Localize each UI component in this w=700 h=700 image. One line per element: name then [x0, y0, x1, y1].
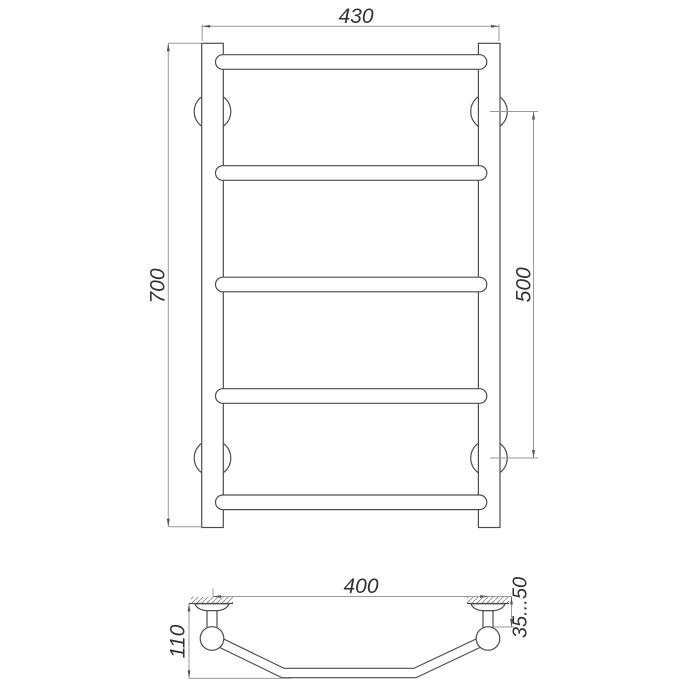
front-view: 430 700 500: [147, 5, 539, 528]
arrowhead: [188, 670, 191, 678]
arrowhead: [167, 519, 170, 527]
wall-hatch: [467, 597, 509, 604]
rung: [216, 389, 487, 404]
technical-drawing: 430 700 500: [0, 0, 700, 700]
arrowhead: [532, 112, 535, 120]
rung: [216, 277, 487, 292]
dim-wall-clearance: 35...50: [510, 577, 532, 638]
rung: [216, 55, 487, 70]
arrowhead: [532, 450, 535, 458]
dim-overall-height: 700: [147, 43, 202, 526]
wall-hatch: [191, 597, 233, 604]
dim-depth-label: 110: [167, 624, 190, 658]
arrowhead: [188, 604, 191, 612]
dim-overall-width-label: 430: [338, 5, 373, 28]
dim-overall-width: 430: [202, 5, 499, 41]
rung: [216, 495, 487, 510]
bracket-ball: [200, 627, 224, 651]
dim-mount-spacing-label: 500: [513, 267, 536, 302]
side-view: 400 110 35...50: [167, 575, 532, 679]
dim-overall-height-label: 700: [147, 268, 170, 303]
drawing-canvas: 430 700 500: [0, 0, 700, 700]
dim-wall-clearance-label: 35...50: [510, 577, 532, 638]
arrowhead: [167, 43, 170, 51]
arrowhead: [491, 25, 499, 28]
rung: [216, 166, 487, 181]
bracket-flange: [471, 604, 505, 611]
bracket-ball: [476, 627, 500, 651]
bracket-flange: [195, 604, 229, 611]
arrowhead: [202, 25, 210, 28]
dim-bracket-span-label: 400: [343, 575, 378, 598]
